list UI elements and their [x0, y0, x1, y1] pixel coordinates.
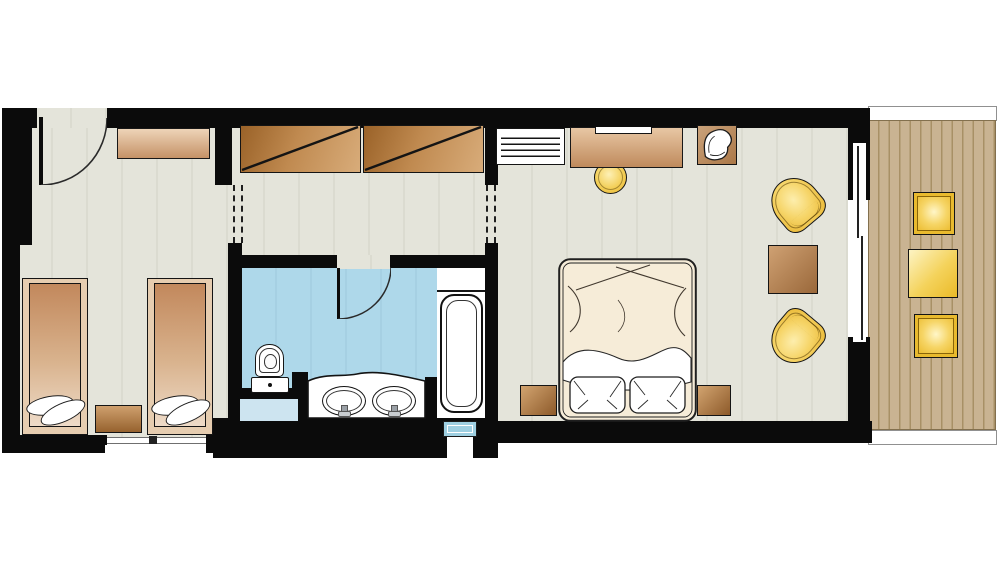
- wardrobe-diagonal: [241, 126, 359, 171]
- nightstand: [95, 405, 142, 433]
- wardrobe-diagonal: [364, 126, 482, 171]
- radiator-slats: [501, 133, 560, 160]
- wall-left-upper: [2, 108, 32, 245]
- radiator-shelf: [496, 128, 565, 165]
- nightstand: [520, 385, 557, 416]
- bathroom-window: [443, 421, 477, 437]
- bathtub-basin: [446, 300, 477, 407]
- wardrobe: [240, 125, 361, 173]
- bathroom-window-frame: [447, 425, 473, 433]
- outdoor-chair-cushion: [918, 318, 954, 354]
- desk-stool-cushion: [598, 165, 623, 190]
- bathroom-door-swing-arc: [338, 267, 391, 319]
- window-post-right: [206, 435, 214, 445]
- sink: [372, 386, 416, 416]
- sink: [322, 386, 366, 416]
- double-bed: [558, 258, 697, 422]
- bathtub-ledge: [437, 290, 485, 292]
- wardrobe: [363, 125, 484, 173]
- bathtub: [440, 294, 483, 413]
- open-passage-marker: [241, 185, 243, 243]
- outdoor-chair: [913, 192, 955, 235]
- balcony-railing-bottom: [868, 430, 997, 445]
- balcony-railing-top: [868, 106, 997, 121]
- bathroom-niche: [240, 399, 298, 421]
- wall-bottom-twin-left: [2, 435, 105, 453]
- outdoor-table: [908, 249, 958, 298]
- toilet-cistern: [251, 377, 289, 393]
- coffee-table: [768, 245, 818, 294]
- wall-master-bottom: [475, 421, 872, 443]
- floor-plan: [0, 0, 1000, 563]
- outdoor-chair-cushion: [917, 196, 951, 231]
- toilet-flush-button: [268, 383, 272, 387]
- desk-tray: [595, 127, 652, 134]
- toilet-bowl: [255, 344, 284, 377]
- wall-left-lower: [2, 245, 20, 453]
- sliding-door-panel-2: [861, 236, 863, 340]
- outdoor-chair: [914, 314, 958, 358]
- toilet-bowl-inner: [264, 354, 277, 369]
- faucet-handle: [338, 411, 351, 417]
- window-mullion: [149, 436, 157, 444]
- sliding-door-panel-1: [857, 146, 859, 238]
- faucet-handle: [388, 411, 401, 417]
- open-passage-marker: [486, 185, 488, 243]
- wall-twin-hallway-stub: [215, 108, 232, 185]
- window-post-left: [99, 435, 107, 445]
- bathroom-window-outside: [447, 437, 473, 458]
- open-passage-marker: [233, 185, 235, 243]
- armchair-base: [697, 125, 737, 165]
- toilet: [251, 344, 289, 394]
- armchair: [698, 126, 735, 163]
- entrance-door-swing-arc: [41, 118, 107, 185]
- wall-stub-vanity-tub: [425, 377, 437, 418]
- sliding-door-track: [853, 143, 866, 342]
- open-passage-marker: [494, 185, 496, 243]
- nightstand: [697, 385, 731, 416]
- dresser: [117, 128, 210, 159]
- wall-right-lower: [848, 337, 870, 443]
